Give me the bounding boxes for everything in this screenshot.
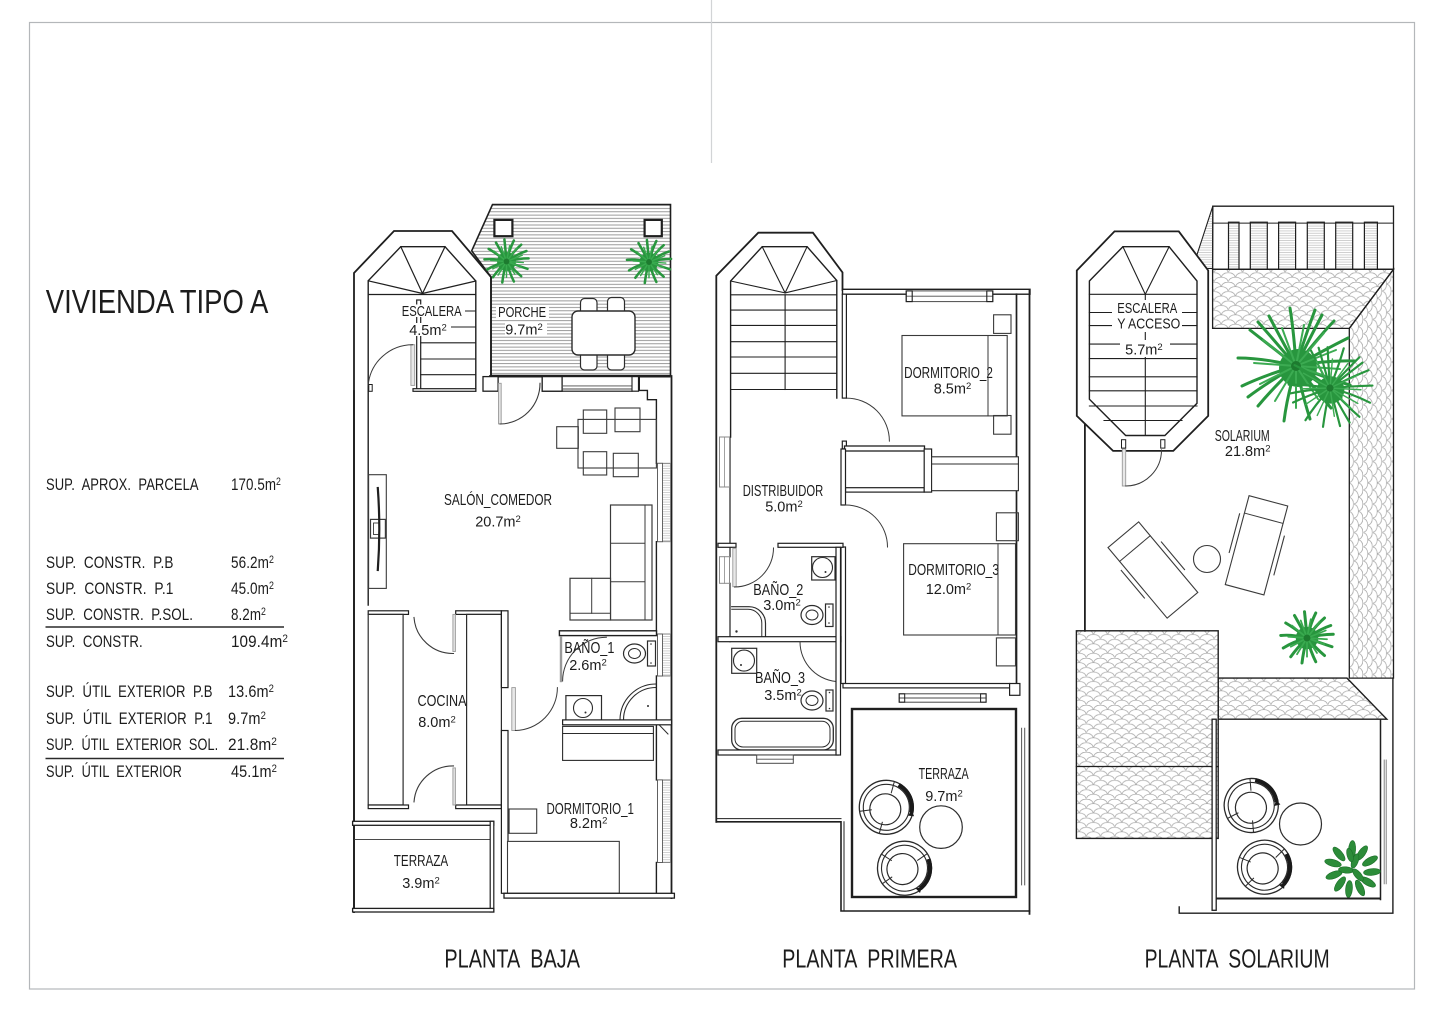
- svg-text:8.0m2: 8.0m2: [418, 715, 456, 732]
- svg-text:21.8m2: 21.8m2: [228, 735, 277, 754]
- svg-text:Y ACCESO: Y ACCESO: [1117, 317, 1180, 333]
- svg-text:PLANTA PRIMERA: PLANTA PRIMERA: [782, 944, 957, 974]
- svg-text:TERRAZA: TERRAZA: [394, 853, 449, 870]
- svg-text:SUP. CONSTR. P.SOL.: SUP. CONSTR. P.SOL.: [46, 605, 193, 624]
- svg-text:8.5m2: 8.5m2: [934, 381, 972, 398]
- svg-text:20.7m2: 20.7m2: [475, 514, 521, 531]
- svg-text:VIVIENDA TIPO A: VIVIENDA TIPO A: [46, 284, 269, 321]
- svg-text:COCINA: COCINA: [418, 693, 467, 710]
- svg-text:109.4m2: 109.4m2: [231, 632, 288, 651]
- svg-text:DORMITORIO_3: DORMITORIO_3: [908, 562, 999, 579]
- svg-text:21.8m2: 21.8m2: [1225, 444, 1271, 461]
- svg-text:9.7m2: 9.7m2: [505, 322, 543, 339]
- svg-text:9.7m2: 9.7m2: [228, 709, 266, 728]
- svg-text:DORMITORIO_2: DORMITORIO_2: [904, 365, 993, 382]
- svg-text:ESCALERA: ESCALERA: [402, 304, 462, 320]
- svg-text:SUP. APROX. PARCELA: SUP. APROX. PARCELA: [46, 475, 199, 494]
- svg-text:5.0m2: 5.0m2: [765, 499, 803, 516]
- svg-text:3.9m2: 3.9m2: [402, 876, 440, 893]
- svg-text:9.7m2: 9.7m2: [925, 789, 963, 806]
- svg-text:PLANTA BAJA: PLANTA BAJA: [444, 944, 580, 974]
- svg-text:170.5m2: 170.5m2: [231, 475, 281, 494]
- svg-text:8.2m2: 8.2m2: [570, 816, 608, 833]
- svg-text:SUP. CONSTR. P.B: SUP. CONSTR. P.B: [46, 553, 174, 572]
- svg-text:12.0m2: 12.0m2: [926, 582, 972, 599]
- svg-text:DISTRIBUIDOR: DISTRIBUIDOR: [743, 483, 824, 500]
- svg-text:SOLARIUM: SOLARIUM: [1215, 428, 1270, 445]
- svg-text:BAÑO_1: BAÑO_1: [564, 637, 614, 657]
- svg-text:2.6m2: 2.6m2: [569, 658, 607, 675]
- svg-text:56.2m2: 56.2m2: [231, 553, 274, 572]
- svg-text:BAÑO_3: BAÑO_3: [755, 667, 805, 687]
- svg-text:SALÓN_COMEDOR: SALÓN_COMEDOR: [444, 490, 552, 509]
- svg-text:SUP. ÚTIL EXTERIOR: SUP. ÚTIL EXTERIOR: [46, 762, 182, 781]
- svg-text:3.5m2: 3.5m2: [764, 688, 802, 705]
- svg-text:45.1m2: 45.1m2: [231, 762, 277, 781]
- svg-text:PLANTA SOLARIUM: PLANTA SOLARIUM: [1145, 944, 1330, 974]
- svg-text:3.0m2: 3.0m2: [763, 598, 801, 615]
- svg-text:PORCHE: PORCHE: [498, 305, 546, 321]
- svg-text:SUP. ÚTIL EXTERIOR P.B: SUP. ÚTIL EXTERIOR P.B: [46, 682, 213, 701]
- svg-text:4.5m2: 4.5m2: [409, 323, 447, 340]
- svg-text:5.7m2: 5.7m2: [1125, 342, 1163, 359]
- svg-text:SUP. CONSTR.: SUP. CONSTR.: [46, 632, 143, 651]
- svg-text:SUP. CONSTR. P.1: SUP. CONSTR. P.1: [46, 579, 174, 598]
- svg-text:BAÑO_2: BAÑO_2: [753, 579, 803, 599]
- svg-text:SUP. ÚTIL EXTERIOR SOL.: SUP. ÚTIL EXTERIOR SOL.: [46, 735, 218, 754]
- svg-text:SUP. ÚTIL EXTERIOR P.1: SUP. ÚTIL EXTERIOR P.1: [46, 709, 213, 728]
- svg-text:ESCALERA: ESCALERA: [1117, 301, 1177, 317]
- svg-text:45.0m2: 45.0m2: [231, 579, 274, 598]
- svg-text:8.2m2: 8.2m2: [231, 605, 266, 624]
- svg-text:13.6m2: 13.6m2: [228, 682, 274, 701]
- svg-text:TERRAZA: TERRAZA: [919, 766, 969, 783]
